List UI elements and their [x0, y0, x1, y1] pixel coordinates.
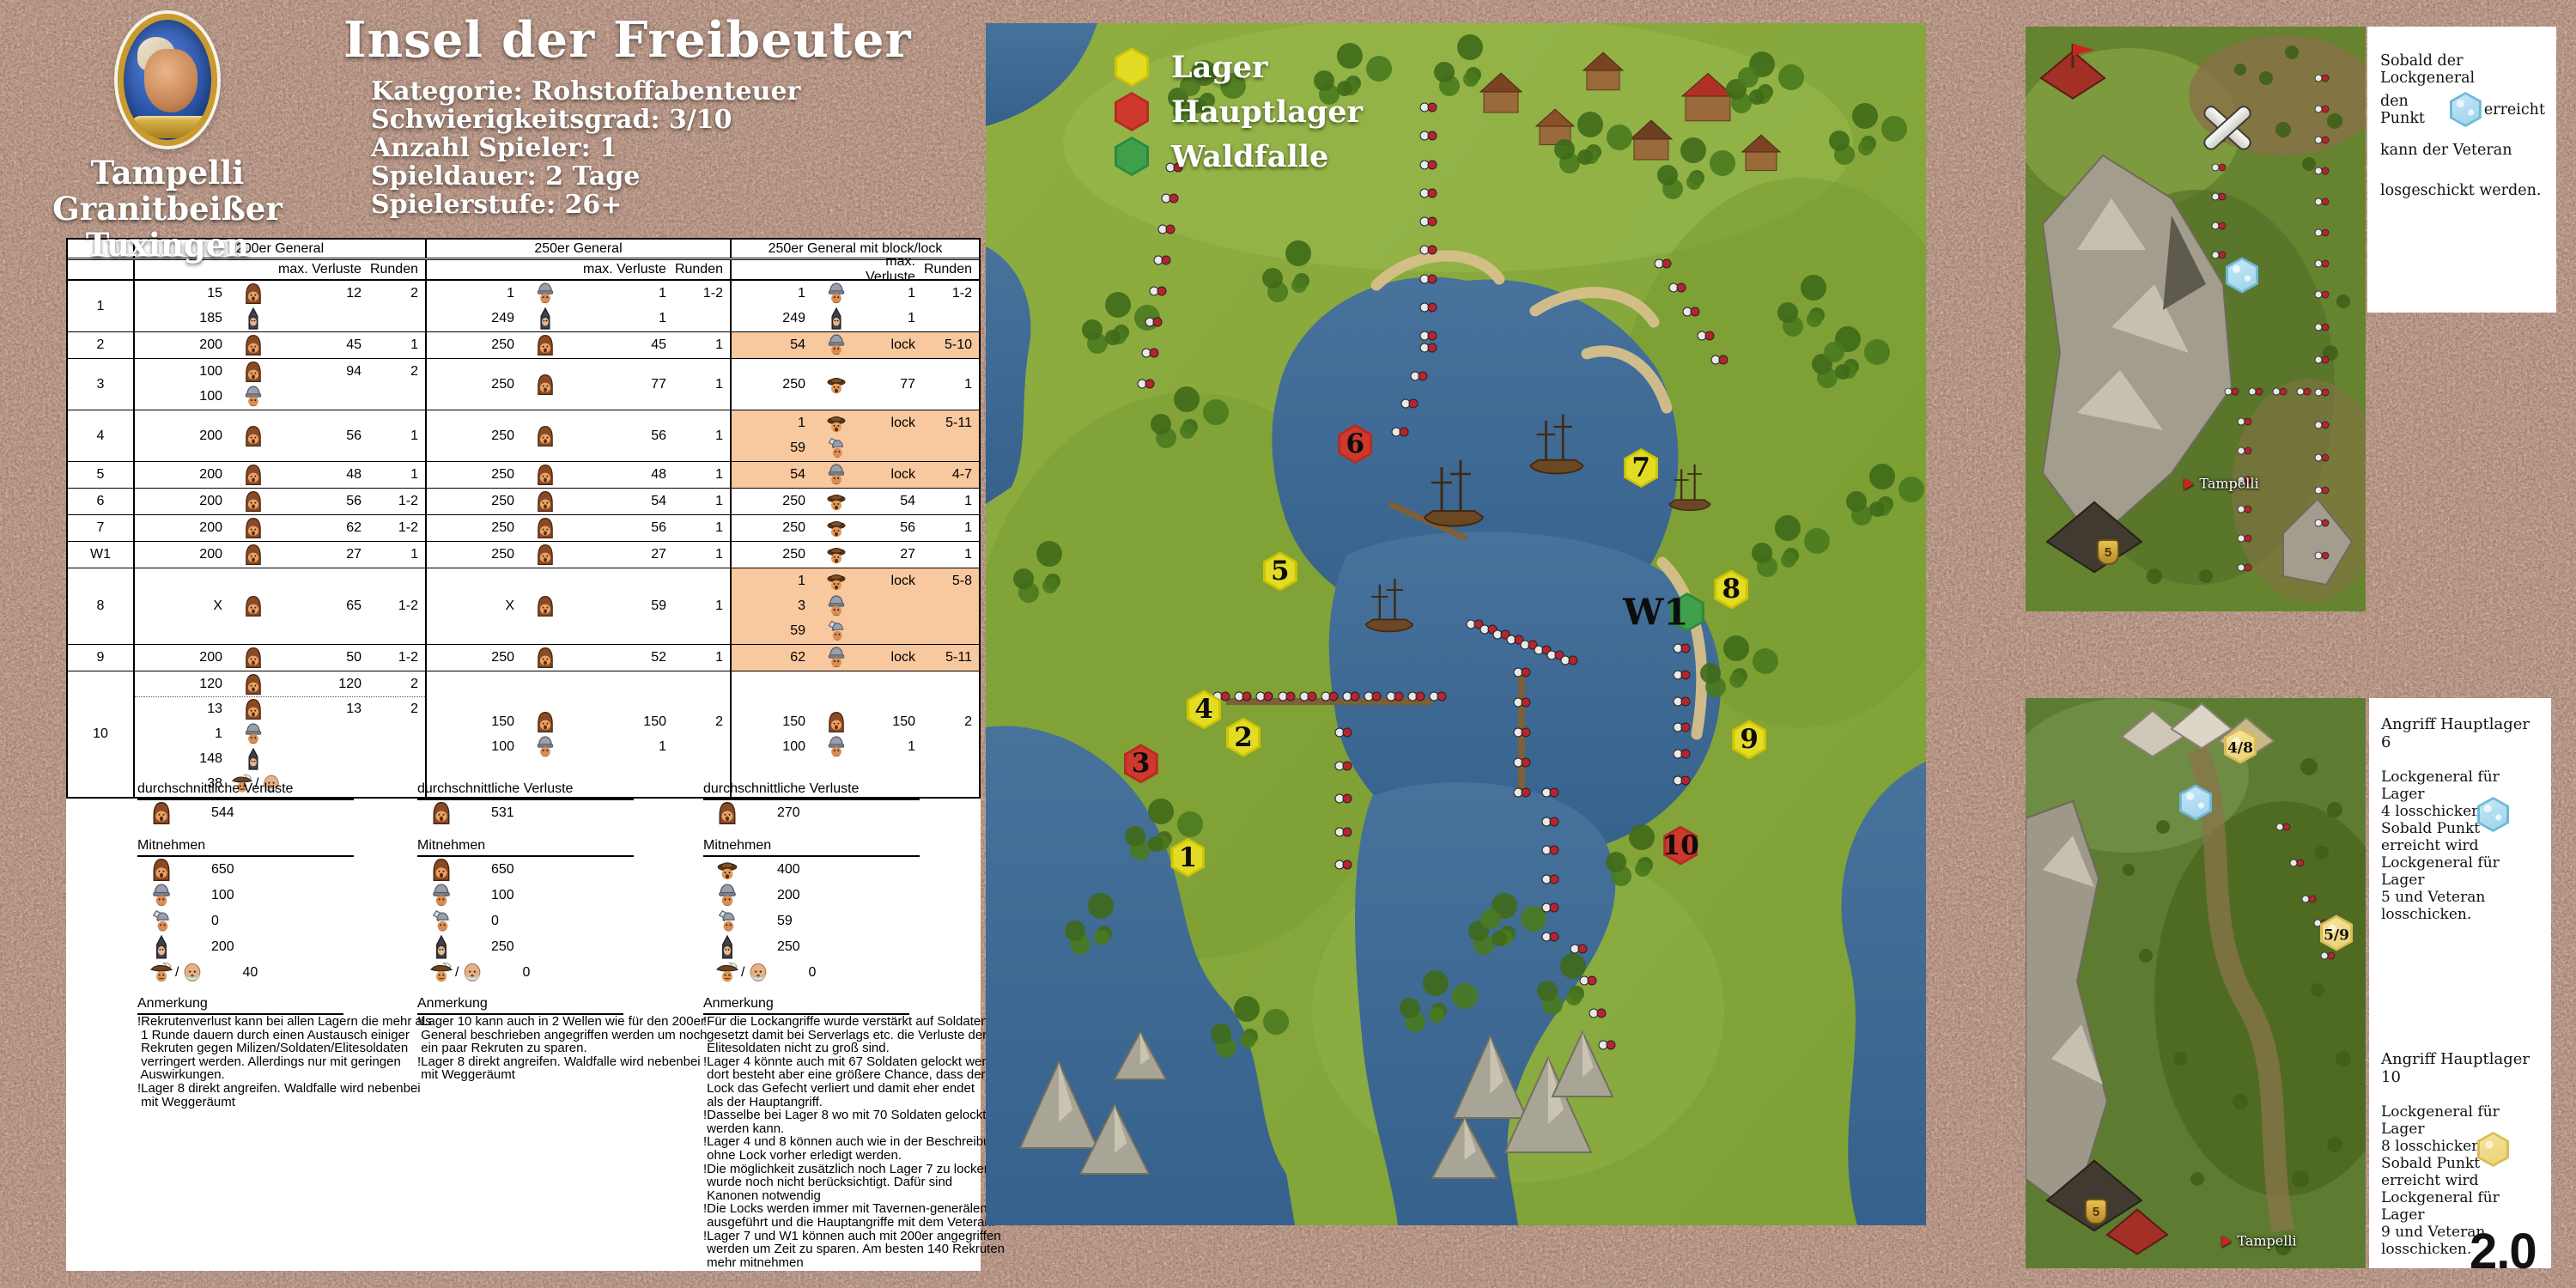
- soldier-icon: [149, 884, 173, 908]
- anmerkung-line: !Lager 8 direkt angreifen. Waldfalle wir…: [137, 1082, 408, 1096]
- battle-x-icon: [2200, 100, 2255, 155]
- map-marker-3: 3: [1124, 744, 1158, 783]
- table-row: 115122185111-22491111-22491: [68, 281, 979, 332]
- anmerkung-title: Anmerkung: [703, 996, 909, 1015]
- mitnehmen-value: 100: [491, 888, 514, 903]
- unit-count: 13: [135, 702, 231, 717]
- cannoneer-icon: [460, 961, 484, 985]
- group-header: 250er General: [427, 240, 732, 258]
- unit-count: 59: [732, 440, 814, 456]
- mitnehmen-title: Mitnehmen: [137, 838, 354, 857]
- max-verluste: 1: [568, 311, 675, 326]
- guide-version: 2.0: [2470, 1223, 2537, 1280]
- unit-count: 148: [135, 751, 231, 767]
- camp-number: 3: [68, 359, 135, 410]
- camp-4-8-marker: 4/8: [2224, 728, 2257, 769]
- group-header: 250er General mit block/lock: [732, 240, 979, 258]
- max-verluste: 59: [568, 598, 675, 614]
- unit-count: 200: [135, 428, 231, 444]
- minimap-lock-route: Tampelli 5: [2026, 27, 2366, 611]
- militia-icon: [534, 307, 556, 330]
- unit-count: 250: [427, 650, 523, 665]
- max-verluste: 56: [568, 428, 675, 444]
- player-name-line: Tampelli: [47, 155, 288, 191]
- table-row: 7200621-2250561250561: [68, 515, 979, 542]
- mitnehmen-row: 650: [417, 857, 688, 883]
- mitnehmen-value: 200: [777, 888, 800, 903]
- strategy-table-panel: 200er General250er General250er General …: [66, 238, 981, 1271]
- mitnehmen-row: /0: [417, 960, 688, 986]
- table-row: 8X651-2X5911lock5-8359: [68, 568, 979, 645]
- camp-number: 8: [68, 568, 135, 644]
- recruit-icon: [534, 334, 556, 356]
- anmerkung-line: dort besteht aber eine größere Chance, d…: [703, 1068, 974, 1082]
- unit-count: 249: [427, 311, 523, 326]
- table-row: 3100942100250771250771: [68, 359, 979, 410]
- mitnehmen-row: 250: [703, 934, 974, 960]
- unit-count: 200: [135, 467, 231, 483]
- legend-label: Lager: [1171, 50, 1267, 85]
- attack-cell: 111-22491: [732, 281, 979, 331]
- recruit-icon: [534, 711, 556, 733]
- anmerkung-line: !Lager 8 direkt angreifen. Waldfalle wir…: [417, 1055, 688, 1069]
- unit-count: 250: [732, 520, 814, 536]
- mitnehmen-value: 200: [211, 939, 234, 955]
- attack-cell: 54lock4-7: [732, 462, 979, 488]
- map-marker-8: 8: [1714, 569, 1748, 609]
- anmerkung-line: mit Weggeräumt: [137, 1096, 408, 1109]
- recruit-icon: [149, 858, 173, 882]
- ice-hex-icon: [2477, 797, 2509, 832]
- axe-icon: [825, 620, 848, 642]
- max-verluste: 150: [859, 714, 924, 730]
- unit-count: 100: [732, 739, 814, 755]
- map-marker-7: 7: [1624, 448, 1658, 488]
- runden: 5-10: [924, 337, 979, 353]
- attack-cell: 15122185: [135, 281, 427, 331]
- mitnehmen-row: 650: [137, 857, 408, 883]
- attack-cell: 250451: [427, 332, 732, 358]
- avg-losses-row: 270: [703, 800, 974, 826]
- max-verluste: lock: [859, 337, 924, 353]
- runden: 1: [675, 598, 730, 614]
- anmerkung-line: Elitesoldaten nicht zu groß sind.: [703, 1042, 974, 1055]
- unit-count: 100: [427, 739, 523, 755]
- mitnehmen-value: 0: [491, 914, 499, 929]
- max-verluste: 77: [568, 377, 675, 392]
- attack-cell: 200621-2: [135, 515, 427, 541]
- camp-number: W1: [68, 542, 135, 568]
- soldier-icon: [534, 283, 556, 305]
- ice-hex-icon: [2450, 92, 2482, 127]
- unit-count: 250: [427, 337, 523, 353]
- avg-losses-row: 544: [137, 800, 408, 826]
- anmerkung-line: werden um Zeit zu sparen. Am besten 140 …: [703, 1242, 974, 1256]
- max-verluste: 56: [276, 494, 370, 509]
- runden: 1: [924, 494, 979, 509]
- attack-cell: 250541: [732, 489, 979, 514]
- camp-hex-icon: [1115, 47, 1149, 87]
- mitnehmen-row: 0: [417, 908, 688, 934]
- recruit-icon: [242, 673, 264, 696]
- soldier-icon: [429, 884, 453, 908]
- recruit-icon: [242, 595, 264, 617]
- elite-icon: [825, 490, 848, 513]
- runden: 1: [675, 377, 730, 392]
- soldier-icon: [715, 884, 739, 908]
- anmerkung-title: Anmerkung: [137, 996, 343, 1015]
- soldier-icon: [242, 723, 264, 745]
- anmerkung-title: Anmerkung: [417, 996, 623, 1015]
- recruit-icon: [534, 490, 556, 513]
- player-profile: Tampelli Granitbeißer Tuxingen: [47, 14, 288, 263]
- mitnehmen-row: 100: [417, 883, 688, 908]
- axe-icon: [149, 909, 173, 933]
- attack-cell: 200271: [135, 542, 427, 568]
- unit-count: 100: [135, 364, 231, 380]
- island-map-art: [986, 23, 1926, 1225]
- attack-cell: 1lock5-1159: [732, 410, 979, 461]
- anmerkung-line: Rekruten gegen Milizen/Soldaten/Elitesol…: [137, 1042, 408, 1055]
- summary-column: durchschnittliche Verluste270Mitnehmen40…: [703, 781, 974, 1269]
- attack-cell: 250561: [427, 515, 732, 541]
- camp-number: 10: [68, 671, 135, 797]
- runden: 1-2: [370, 494, 425, 509]
- runden: 1-2: [924, 286, 979, 301]
- map-marker-9: 9: [1732, 720, 1766, 759]
- attack-cell: 250771: [732, 359, 979, 410]
- map-marker-6: 6: [1338, 424, 1372, 464]
- max-verluste: 1: [859, 311, 924, 326]
- attack-cell: 200561-2: [135, 489, 427, 514]
- recruit-icon: [242, 544, 264, 566]
- soldier-icon: [825, 283, 848, 305]
- mitnehmen-row: 100: [137, 883, 408, 908]
- avg-losses-title: durchschnittliche Verluste: [137, 781, 354, 800]
- mitnehmen-row: /0: [703, 960, 974, 986]
- anmerkung-line: ein paar Rekruten zu sparen.: [417, 1042, 688, 1055]
- mitnehmen-row: 59: [703, 908, 974, 934]
- cannoneer-icon: [180, 961, 204, 985]
- avg-losses-value: 531: [491, 805, 514, 821]
- unit-count: 250: [427, 520, 523, 536]
- mitnehmen-value: 0: [522, 965, 530, 981]
- runden: 1-2: [370, 650, 425, 665]
- legend-item-camp: Lager: [1115, 45, 1363, 89]
- camp-5-9-marker: 5/9: [2320, 915, 2353, 956]
- anmerkung-line: !Dasselbe bei Lager 8 wo mit 70 Soldaten…: [703, 1109, 974, 1122]
- unit-count: 54: [732, 467, 814, 483]
- soldier-icon: [534, 736, 556, 758]
- avg-losses-title: durchschnittliche Verluste: [417, 781, 634, 800]
- unit-count: 250: [427, 547, 523, 562]
- recruit-icon: [429, 858, 453, 882]
- ice-point-marker: [2179, 785, 2212, 825]
- attack-cell: 54lock5-10: [732, 332, 979, 358]
- recruit-icon: [242, 334, 264, 356]
- unit-count: 249: [732, 311, 814, 326]
- forest-trap-hex-icon: [1115, 137, 1149, 176]
- detail-difficulty: Schwierigkeitsgrad: 3/10: [371, 106, 912, 134]
- note-body: Lockgeneral für Lager4 losschicken. Soba…: [2381, 769, 2543, 923]
- attack-cell: 120120213132114838/: [135, 671, 427, 797]
- table-row: W1200271250271250271: [68, 542, 979, 568]
- legend-item-forest-trap: Waldfalle: [1115, 134, 1363, 179]
- mitnehmen-title: Mitnehmen: [703, 838, 920, 857]
- camp-number: 6: [68, 489, 135, 514]
- max-verluste: 1: [859, 286, 924, 301]
- unit-count: 250: [427, 467, 523, 483]
- max-verluste: 56: [276, 428, 370, 444]
- veteran-note-panel: Sobald der Lockgeneral den Punkt erreich…: [2367, 27, 2556, 313]
- attack-cell: 200451: [135, 332, 427, 358]
- table-row: 220045125045154lock5-10: [68, 332, 979, 359]
- anmerkung-line: mit Weggeräumt: [417, 1068, 688, 1082]
- unit-count: 200: [135, 520, 231, 536]
- attack-cell: 250561: [427, 410, 732, 461]
- attack-cell: 200501-2: [135, 645, 427, 671]
- runden: 5-8: [924, 574, 979, 589]
- runden: 1: [675, 494, 730, 509]
- table-row: 10120120213132114838/1501502100115015021…: [68, 671, 979, 798]
- max-verluste: 65: [276, 598, 370, 614]
- detail-duration: Spieldauer: 2 Tage: [371, 162, 912, 191]
- runden: 1-2: [370, 598, 425, 614]
- map-marker-4: 4: [1187, 690, 1221, 729]
- anmerkung-line: !Für die Lockangriffe wurde verstärkt au…: [703, 1015, 974, 1029]
- attack-cell: 250271: [732, 542, 979, 568]
- anmerkung-line: !Die möglichkeit zusätzlich noch Lager 7…: [703, 1163, 974, 1176]
- unit-count: 250: [732, 494, 814, 509]
- attack-cell: 15015021001: [427, 671, 732, 797]
- camp-number: 4: [68, 410, 135, 461]
- player-name-line: Tuxingen: [47, 227, 288, 263]
- runden: 1: [370, 428, 425, 444]
- runden: 2: [924, 714, 979, 730]
- detail-level: Spielerstufe: 26+: [371, 191, 912, 219]
- max-verluste: lock: [859, 574, 924, 589]
- attack-cell: 200481: [135, 462, 427, 488]
- mitnehmen-value: 400: [777, 862, 800, 878]
- cavalry-icon: [429, 961, 453, 985]
- axe-icon: [715, 909, 739, 933]
- max-verluste: lock: [859, 467, 924, 483]
- runden: 1: [924, 520, 979, 536]
- player-pennant-icon: [2184, 477, 2194, 489]
- runden: 1: [675, 520, 730, 536]
- legend-label: Waldfalle: [1171, 139, 1328, 174]
- max-verluste: 13: [276, 702, 370, 717]
- soldier-icon: [825, 595, 848, 617]
- runden: 1: [675, 547, 730, 562]
- mitnehmen-row: 200: [703, 883, 974, 908]
- unit-count: 150: [732, 714, 814, 730]
- elite-icon: [825, 412, 848, 434]
- unit-count: 200: [135, 650, 231, 665]
- anmerkung-line: !Lager 7 und W1 können auch mit 200er an…: [703, 1230, 974, 1243]
- unit-count: 200: [135, 547, 231, 562]
- elite-icon: [825, 374, 848, 396]
- anmerkung-line: General beschrieben angegriffen werden u…: [417, 1029, 688, 1042]
- attack-cell: 250541: [427, 489, 732, 514]
- unit-count: 250: [732, 547, 814, 562]
- axe-icon: [429, 909, 453, 933]
- attack-cell: 250561: [732, 515, 979, 541]
- anmerkung-line: Lock das Gefecht verliert und damit eher…: [703, 1082, 974, 1096]
- runden: 1: [924, 377, 979, 392]
- camp-number: 7: [68, 515, 135, 541]
- soldier-icon: [825, 464, 848, 486]
- legend-item-main-camp: Hauptlager: [1115, 89, 1363, 134]
- note-line: den Punkt erreicht: [2380, 89, 2545, 130]
- attack-cell: 100942100: [135, 359, 427, 410]
- recruit-icon: [429, 801, 453, 825]
- runden: 1: [370, 467, 425, 483]
- adventure-header: Insel der Freibeuter Kategorie: Rohstoff…: [343, 14, 912, 219]
- ice-point-marker: [2226, 258, 2258, 298]
- unit-count: 1: [732, 574, 814, 589]
- runden: 1: [370, 547, 425, 562]
- max-verluste: 62: [276, 520, 370, 536]
- militia-icon: [242, 748, 264, 770]
- attack-notes-panel: Angriff Hauptlager 6 Lockgeneral für Lag…: [2369, 698, 2551, 1268]
- max-verluste: 1: [859, 739, 924, 755]
- cavalry-icon: [149, 961, 173, 985]
- unit-count: 100: [135, 389, 231, 404]
- unit-count: 250: [732, 377, 814, 392]
- mitnehmen-value: 0: [808, 965, 816, 981]
- soldier-icon: [825, 736, 848, 758]
- unit-count: 54: [732, 337, 814, 353]
- max-verluste: 27: [568, 547, 675, 562]
- max-verluste: 77: [859, 377, 924, 392]
- unit-count: 185: [135, 311, 231, 326]
- map-marker-2: 2: [1226, 718, 1261, 757]
- anmerkung-line: werden kann.: [703, 1122, 974, 1136]
- table-row: 9200501-225052162lock5-11: [68, 645, 979, 671]
- attack-cell: X591: [427, 568, 732, 644]
- anmerkung-line: 1 Runde dauern durch einen Austausch ein…: [137, 1029, 408, 1042]
- player-name-line: Granitbeißer: [47, 191, 288, 227]
- militia-icon: [825, 307, 848, 330]
- anmerkung-line: !Die Locks werden immer mit Tavernen-gen…: [703, 1202, 974, 1216]
- soldier-icon: [825, 647, 848, 669]
- max-verluste: 12: [276, 286, 370, 301]
- max-verluste: 56: [568, 520, 675, 536]
- note-line: Sobald der Lockgeneral: [2380, 49, 2545, 89]
- elite-icon: [715, 858, 739, 882]
- max-verluste: 27: [276, 547, 370, 562]
- anmerkung-line: !Lager 4 könnte auch mit 67 Soldaten gel…: [703, 1055, 974, 1069]
- max-verluste: 120: [276, 677, 370, 692]
- recruit-icon: [534, 425, 556, 447]
- mitnehmen-value: 59: [777, 914, 793, 929]
- gold-hex-icon: [2477, 1132, 2509, 1167]
- map-marker-1: 1: [1170, 838, 1205, 878]
- map-legend: Lager Hauptlager Waldfalle: [1115, 45, 1363, 179]
- recruit-icon: [715, 801, 739, 825]
- attack-cell: 62lock5-11: [732, 645, 979, 671]
- camp-number: 9: [68, 645, 135, 671]
- attack-cell: 15015021001: [732, 671, 979, 797]
- unit-count: 250: [427, 428, 523, 444]
- attack-cell: 111-22491: [427, 281, 732, 331]
- soldier-icon: [825, 334, 848, 356]
- avg-losses-value: 544: [211, 805, 234, 821]
- mitnehmen-value: 250: [491, 939, 514, 955]
- elite-icon: [825, 570, 848, 592]
- summary-column: durchschnittliche Verluste544Mitnehmen65…: [137, 781, 408, 1109]
- unit-count: 250: [427, 494, 523, 509]
- minimap-attack-route: 4/8 5/9 Tampelli 5: [2026, 698, 2366, 1268]
- max-verluste: 56: [859, 520, 924, 536]
- garrison-shield-badge: 5: [2097, 539, 2119, 565]
- recruit-icon: [534, 647, 556, 669]
- runden: 2: [370, 364, 425, 380]
- avg-losses-title: durchschnittliche Verluste: [703, 781, 920, 800]
- runden: 1-2: [370, 520, 425, 536]
- unit-count: 200: [135, 494, 231, 509]
- max-verluste: 94: [276, 364, 370, 380]
- note-title: Angriff Hauptlager 6: [2381, 715, 2543, 751]
- unit-count: 120: [135, 677, 231, 692]
- max-verluste: 54: [568, 494, 675, 509]
- max-verluste: 45: [276, 337, 370, 353]
- mitnehmen-value: 650: [211, 862, 234, 878]
- camp-number: 5: [68, 462, 135, 488]
- unit-count: 1: [732, 286, 814, 301]
- max-verluste: 48: [276, 467, 370, 483]
- recruit-icon: [242, 517, 264, 539]
- avg-losses-row: 531: [417, 800, 688, 826]
- mitnehmen-row: 0: [137, 908, 408, 934]
- anmerkung-line: verringert werden. Allerdings nur mit ge…: [137, 1055, 408, 1069]
- attack-cell: 250271: [427, 542, 732, 568]
- max-verluste: lock: [859, 416, 924, 431]
- unit-count: 3: [732, 598, 814, 614]
- mitnehmen-row: 400: [703, 857, 974, 883]
- militia-icon: [715, 935, 739, 959]
- runden: 1: [924, 547, 979, 562]
- runden: 2: [370, 677, 425, 692]
- recruit-icon: [242, 698, 264, 720]
- attack-cell: 250481: [427, 462, 732, 488]
- recruit-icon: [825, 711, 848, 733]
- recruit-icon: [534, 595, 556, 617]
- anmerkung-line: !Rekrutenverlust kann bei allen Lagern d…: [137, 1015, 408, 1029]
- table-row: 520048125048154lock4-7: [68, 462, 979, 489]
- mitnehmen-row: 200: [137, 934, 408, 960]
- mitnehmen-title: Mitnehmen: [417, 838, 634, 857]
- unit-count: 59: [732, 623, 814, 639]
- runden: 2: [370, 702, 425, 717]
- recruit-icon: [149, 801, 173, 825]
- max-verluste: 1: [568, 286, 675, 301]
- anmerkung-line: !Lager 10 kann auch in 2 Wellen wie für …: [417, 1015, 688, 1029]
- recruit-icon: [242, 647, 264, 669]
- attack-cell: 250521: [427, 645, 732, 671]
- unit-count: 62: [732, 650, 814, 665]
- runden: 5-11: [924, 650, 979, 665]
- note-line: kann der Veteran: [2380, 130, 2545, 170]
- anmerkung-line: wurde noch nicht berücksichtigt. Dafür s…: [703, 1176, 974, 1189]
- unit-count: 1: [732, 416, 814, 431]
- page-title: Insel der Freibeuter: [343, 14, 912, 67]
- max-verluste: 150: [568, 714, 675, 730]
- player-avatar: [118, 14, 217, 146]
- max-verluste: 52: [568, 650, 675, 665]
- adventure-map: 12345678910W1: [986, 23, 1926, 1225]
